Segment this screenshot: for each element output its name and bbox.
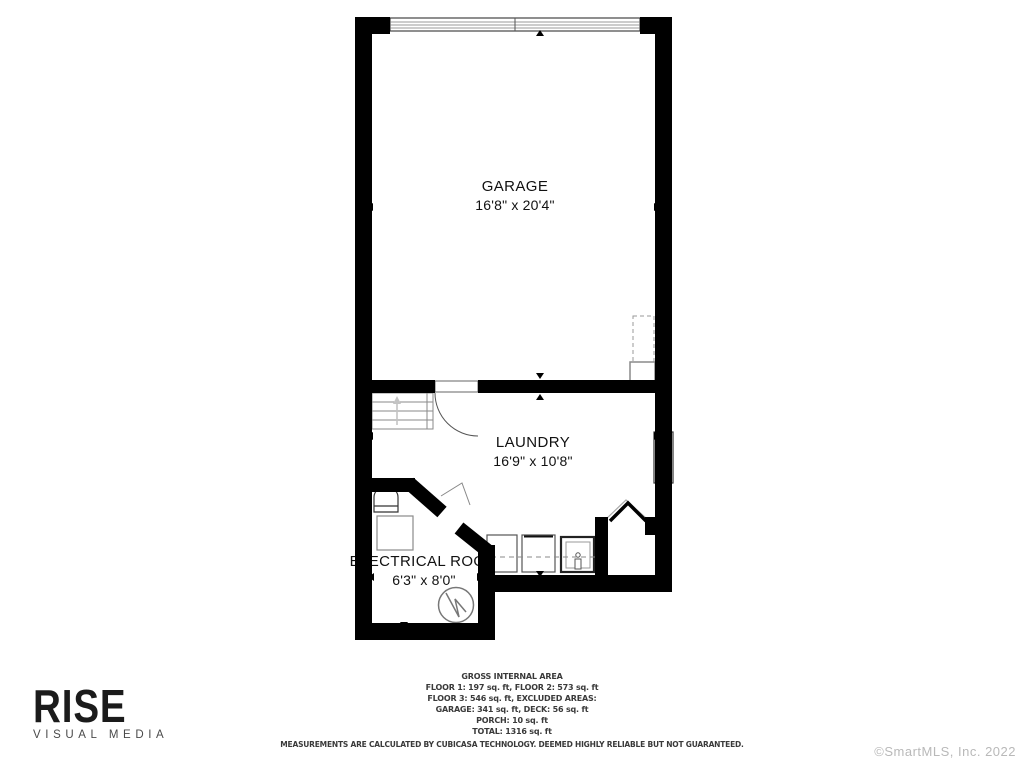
area-summary-line: PORCH: 10 sq. ft xyxy=(202,715,822,726)
area-summary: GROSS INTERNAL AREA FLOOR 1: 197 sq. ft,… xyxy=(202,671,822,750)
smartmls-copyright: ©SmartMLS, Inc. 2022 xyxy=(874,744,1016,759)
area-summary-title: GROSS INTERNAL AREA xyxy=(202,671,822,682)
area-summary-line: TOTAL: 1316 sq. ft xyxy=(202,726,822,737)
rise-logo: RISE VISUAL MEDIA xyxy=(33,684,168,741)
rise-logo-title: RISE xyxy=(33,684,147,728)
measurement-disclaimer: MEASUREMENTS ARE CALCULATED BY CUBICASA … xyxy=(202,739,822,750)
area-summary-line: GARAGE: 341 sq. ft, DECK: 56 sq. ft xyxy=(202,704,822,715)
floorplan-page: GARAGE 16'8" x 20'4" LAUNDRY 16'9" x 10'… xyxy=(0,0,1024,768)
area-summary-line: FLOOR 1: 197 sq. ft, FLOOR 2: 573 sq. ft xyxy=(202,682,822,693)
area-summary-line: FLOOR 3: 546 sq. ft, EXCLUDED AREAS: xyxy=(202,693,822,704)
annotations-layer: GROSS INTERNAL AREA FLOOR 1: 197 sq. ft,… xyxy=(0,0,1024,768)
